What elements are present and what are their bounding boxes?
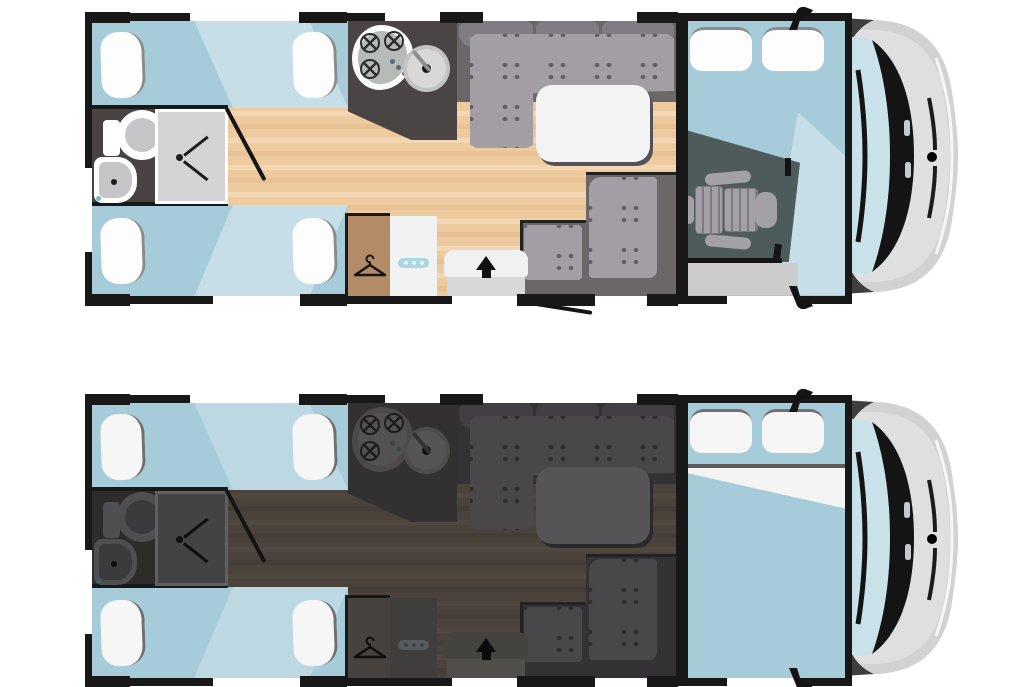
bed-pillow	[100, 31, 146, 98]
bench-cushion	[524, 607, 582, 662]
bed-pillow	[292, 599, 338, 666]
hob-knob	[390, 59, 395, 64]
fridge-handle	[398, 258, 429, 268]
wardrobe	[345, 213, 390, 296]
wall-segment	[637, 12, 678, 23]
overcab-pillow	[690, 27, 752, 71]
wall-segment	[85, 634, 92, 686]
side-sofa-cushion	[589, 559, 657, 660]
hob-burner-icon	[360, 441, 380, 461]
wall-segment	[647, 676, 678, 687]
hob-knob	[390, 441, 395, 446]
wing-mirror-icon	[786, 386, 816, 414]
floorplan-night	[0, 394, 1024, 687]
dinette-table	[536, 85, 650, 162]
bed-pillow	[100, 217, 146, 284]
hob-burner-icon	[360, 415, 380, 435]
logo-dot	[927, 152, 937, 162]
entry-step	[447, 659, 525, 678]
entry-step	[447, 277, 525, 296]
entry-arrow-stem	[482, 651, 491, 660]
side-sofa-cushion	[589, 177, 657, 278]
entry-arrow-icon	[476, 256, 496, 270]
wall-segment	[300, 676, 347, 687]
entry-arrow-icon	[476, 638, 496, 652]
bed-divider	[688, 464, 845, 468]
floorplan-canvas	[0, 0, 1024, 687]
fridge-handle	[398, 640, 429, 650]
wing-mirror-icon	[786, 4, 816, 32]
basin-drain	[111, 561, 117, 567]
wall-segment	[845, 13, 852, 304]
hanger-icon	[351, 254, 389, 278]
wall-segment	[440, 394, 483, 405]
wing-mirror-icon	[786, 666, 816, 687]
fridge	[390, 216, 437, 296]
fridge	[390, 598, 437, 678]
basin-tap	[96, 578, 101, 583]
floorplan-day	[0, 12, 1024, 312]
hob-burner-icon	[360, 33, 380, 53]
shower-drain	[176, 536, 183, 543]
hob-burner-icon	[360, 59, 380, 79]
bed-pillow	[100, 413, 146, 480]
overcab-pillow	[762, 27, 824, 71]
wall-segment	[85, 252, 92, 304]
wall-segment	[300, 294, 347, 306]
bulkhead-wall	[676, 395, 688, 686]
dinette-table	[536, 467, 650, 544]
wall-segment	[647, 294, 678, 306]
door-pillar	[785, 158, 791, 176]
toilet-bowl	[125, 118, 159, 152]
wall-segment	[440, 12, 483, 23]
wing-mirror-icon	[786, 284, 816, 312]
wall-segment	[845, 395, 852, 686]
overcab-pillow	[690, 409, 752, 453]
entry-arrow-stem	[482, 269, 491, 278]
bed-pillow	[292, 217, 338, 284]
bed-pillow	[100, 599, 146, 666]
cab-sill	[688, 263, 798, 295]
logo-dot	[927, 534, 937, 544]
wall-segment	[85, 13, 92, 168]
basin-drain	[111, 179, 117, 185]
wall-segment	[637, 394, 678, 405]
overcab-pillow	[762, 409, 824, 453]
hob-burner-icon	[384, 413, 404, 433]
driver-seat-front	[755, 192, 777, 228]
bulkhead-wall	[676, 13, 688, 304]
wall-segment	[517, 676, 595, 687]
driver-seat-back	[695, 186, 723, 234]
cab-floor-edge	[688, 258, 782, 263]
wall-segment	[299, 394, 347, 405]
bench-cushion	[524, 225, 582, 280]
hob-burner-icon	[384, 31, 404, 51]
shower	[155, 491, 228, 586]
hanger-icon	[351, 636, 389, 660]
wall-segment	[517, 294, 595, 306]
basin-tap	[96, 196, 101, 201]
wardrobe	[345, 595, 390, 678]
shower	[155, 109, 228, 204]
toilet-bowl	[125, 500, 159, 534]
hob-knob	[396, 65, 401, 70]
bed-pillow	[292, 413, 338, 480]
hob-knob	[396, 447, 401, 452]
wall-segment	[299, 12, 347, 23]
shower-drain	[176, 154, 183, 161]
bed-pillow	[292, 31, 338, 98]
wall-segment	[85, 395, 92, 550]
driver-seat-cushion	[724, 188, 758, 232]
